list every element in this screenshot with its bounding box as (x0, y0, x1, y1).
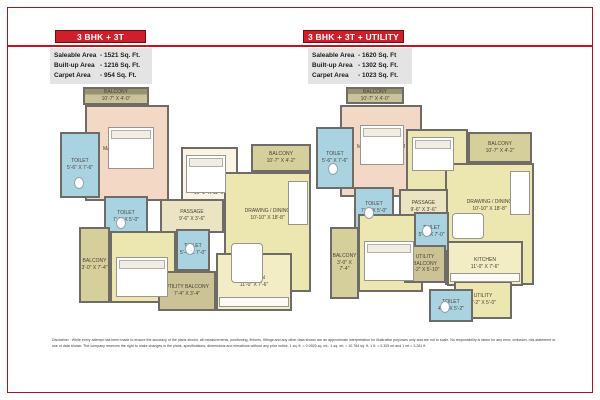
area-label: Carpet Area (312, 71, 358, 81)
room-label: BALCONY (104, 89, 128, 96)
room-label: BALCONY (333, 253, 357, 260)
room-dims: 11'-0" X 7'-6" (240, 282, 268, 289)
room-toilet-master: TOILET 5'-6" X 7'-6" (316, 127, 354, 189)
area-value: - 1521 Sq. Ft. (100, 51, 140, 61)
area-value: - 1620 Sq. Ft (358, 51, 396, 61)
area-row: Built-up Area - 1216 Sq. Ft. (54, 61, 148, 71)
plan-title-bar-right: 3 BHK + 3T + UTILITY (303, 30, 404, 43)
room-label: UTILITY BALCONY (165, 284, 209, 291)
area-row: Saleable Area - 1521 Sq. Ft. (54, 51, 148, 61)
bed-icon (364, 241, 414, 281)
area-label: Built-up Area (54, 61, 100, 71)
room-balcony-right: BALCONY 10'-7" X 4'-2" (468, 132, 532, 163)
sofa-icon (510, 171, 530, 215)
toilet-fixture-icon (422, 225, 432, 237)
bed-icon (186, 155, 226, 193)
room-dims: 3'-0" X 7'-4" (81, 265, 107, 272)
area-row: Carpet Area - 954 Sq. Ft. (54, 71, 148, 81)
room-balcony-top: BALCONY 10'-7" X 4'-0" (346, 87, 404, 104)
area-info-box-left: Saleable Area - 1521 Sq. Ft. Built-up Ar… (50, 48, 152, 84)
room-dims: 10'-7" X 4'-2" (267, 158, 296, 165)
room-passage: PASSAGE 9'-6" X 3'-6" (160, 199, 224, 233)
toilet-fixture-icon (74, 177, 84, 189)
toilet-fixture-icon (440, 301, 450, 313)
area-label: Saleable Area (312, 51, 358, 61)
brochure-page: 3 BHK + 3T Saleable Area - 1521 Sq. Ft. … (0, 0, 600, 400)
bed-icon (360, 125, 404, 165)
room-dims: 5'-6" X 7'-6" (67, 165, 93, 172)
toilet-fixture-icon (185, 243, 195, 255)
plan-title: 3 BHK + 3T + UTILITY (308, 32, 399, 42)
area-row: Saleable Area - 1620 Sq. Ft (312, 51, 408, 61)
area-row: Carpet Area - 1023 Sq. Ft. (312, 71, 408, 81)
room-label: DRAWING / DINING (245, 208, 291, 215)
sofa-icon (288, 181, 308, 225)
room-dims: 7'-4" X 3'-4" (174, 291, 200, 298)
area-value: - 954 Sq. Ft. (100, 71, 136, 81)
room-label: TOILET (117, 210, 134, 217)
room-dims: 10'-10" X 18'-8" (250, 215, 284, 222)
area-value: - 1216 Sq. Ft. (100, 61, 140, 71)
toilet-fixture-icon (116, 217, 126, 229)
room-label: TOILET (326, 151, 343, 158)
room-balcony-top: BALCONY 10'-7" X 4'-0" (83, 87, 149, 105)
room-balcony-left: BALCONY 3'-0" X 7'-4" (79, 227, 110, 303)
disclaimer-text: Disclaimer : While every attempt has bee… (52, 338, 559, 350)
plan-title: 3 BHK + 3T (77, 32, 124, 42)
floor-plan-left: MASTER BEDROOM 11'-0" X 14'-6" BALCONY 1… (50, 85, 312, 335)
divider-line (8, 45, 592, 47)
plan-title-bar-left: 3 BHK + 3T (55, 30, 146, 43)
room-balcony-left: BALCONY 3'-0" X 7'-4" (330, 227, 359, 299)
room-label: KITCHEN (474, 257, 496, 264)
area-info-box-right: Saleable Area - 1620 Sq. Ft Built-up Are… (308, 48, 412, 84)
area-label: Carpet Area (54, 71, 100, 81)
room-dims: 10'-7" X 4'-0" (361, 96, 390, 103)
room-label: BALCONY (488, 141, 512, 148)
room-label: BALCONY (363, 89, 387, 96)
room-dims: 11'-0" X 7'-6" (471, 264, 499, 271)
room-toilet-4: TOILET 4'-6" X 5'-2" (429, 289, 473, 322)
room-label: UTILITY (474, 293, 493, 300)
area-value: - 1302 Sq. Ft. (358, 61, 398, 71)
dining-table-icon (452, 213, 484, 239)
toilet-fixture-icon (364, 207, 374, 219)
room-dims: 3'-0" X 7'-4" (332, 260, 357, 274)
room-dims: 7'-2" X 5'-0" (470, 300, 496, 307)
area-row: Built-up Area - 1302 Sq. Ft. (312, 61, 408, 71)
room-dims: 10'-7" X 4'-0" (102, 96, 131, 103)
room-dims: 10'-7" X 4'-2" (486, 148, 515, 155)
room-label: BALCONY (269, 151, 293, 158)
room-label: BALCONY (83, 258, 107, 265)
area-label: Saleable Area (54, 51, 100, 61)
dining-table-icon (231, 243, 263, 283)
bed-icon (116, 257, 168, 297)
room-dims: 10'-10" X 18'-8" (472, 206, 506, 213)
area-value: - 1023 Sq. Ft. (358, 71, 398, 81)
area-label: Built-up Area (312, 61, 358, 71)
bed-icon (412, 137, 454, 171)
bed-icon (108, 127, 154, 169)
room-dims: 9'-6" X 3'-6" (179, 216, 205, 223)
room-label: TOILET (71, 158, 88, 165)
room-label: PASSAGE (180, 209, 204, 216)
room-label: PASSAGE (412, 200, 436, 207)
kitchen-counter-icon (219, 297, 289, 307)
floor-plan-right: MASTER BEDROOM 11'-0" X 14'-6" BALCONY 1… (302, 85, 564, 335)
room-dims: 5'-2" X 5'-10" (411, 267, 440, 274)
room-label: DRAWING / DINING (467, 199, 513, 206)
toilet-fixture-icon (328, 163, 338, 175)
kitchen-counter-icon (450, 273, 520, 282)
